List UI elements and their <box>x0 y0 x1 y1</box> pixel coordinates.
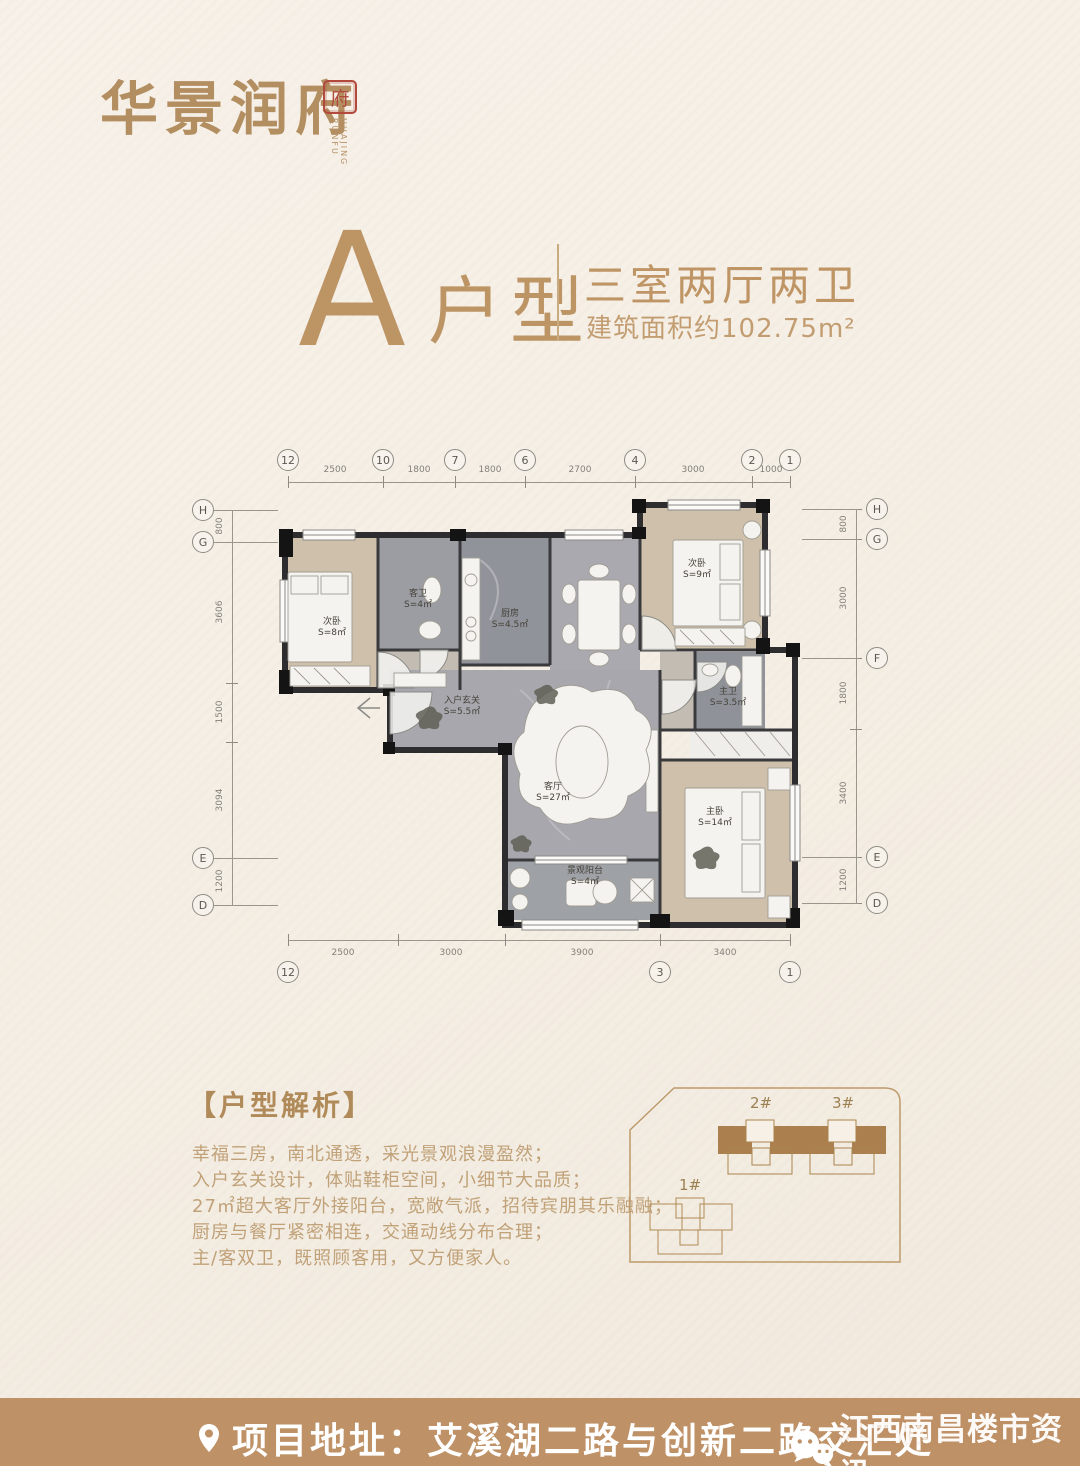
room-name: 厨房 <box>492 609 529 620</box>
watermark: 江西南昌楼市资讯 <box>788 1404 1080 1466</box>
analysis-line: 厨房与餐厅紧密相连，交通动线分布合理； <box>192 1218 553 1244</box>
grid-bubble-top: 12 <box>277 449 299 471</box>
building-3-label: 3# <box>832 1094 854 1112</box>
grid-bubble-right: F <box>866 647 888 669</box>
grid-bubble-left: G <box>192 531 214 553</box>
grid-bubble-right: G <box>866 528 888 550</box>
unit-area: 建筑面积约102.75m² <box>586 308 856 345</box>
axis-tick <box>505 934 506 946</box>
room-label-bedroom-left: 次卧 S=8㎡ <box>318 617 346 640</box>
room-name: 客厅 <box>536 782 570 793</box>
building-1 <box>650 1198 732 1254</box>
axis-leader <box>214 542 278 543</box>
dim-label: 800 <box>215 517 225 534</box>
room-area: S=14㎡ <box>698 818 732 829</box>
room-area: S=9㎡ <box>683 570 711 581</box>
axis-tick <box>226 683 238 684</box>
dim-label: 1000 <box>760 465 783 475</box>
axis-leader <box>802 658 858 659</box>
room-label-living: 客厅 S=27㎡ <box>536 782 570 805</box>
building-2-label: 2# <box>750 1094 772 1112</box>
dim-label: 1800 <box>408 465 431 475</box>
room-name: 主卧 <box>698 807 732 818</box>
axis-tick <box>398 934 399 946</box>
axis-tick <box>525 476 526 488</box>
room-area: S=4.5㎡ <box>492 620 529 631</box>
room-name: 主卫 <box>710 687 747 698</box>
axis-line-bottom <box>288 940 790 941</box>
title-divider <box>557 244 559 340</box>
location-pin-icon <box>198 1423 220 1453</box>
analysis-heading: 【户型解析】 <box>188 1084 374 1124</box>
room-name: 次卧 <box>683 559 711 570</box>
dim-label: 1200 <box>215 870 225 893</box>
room-name: 客卫 <box>404 589 432 600</box>
room-name: 入户玄关 <box>444 696 481 707</box>
wechat-icon <box>788 1428 835 1466</box>
axis-tick <box>635 476 636 488</box>
unit-spec: 三室两厅两卫 <box>584 252 860 313</box>
axis-leader <box>802 539 858 540</box>
room-area: S=5.5㎡ <box>444 707 481 718</box>
room-label-balcony: 景观阳台 S=4㎡ <box>567 866 603 889</box>
dim-label: 2500 <box>324 465 347 475</box>
axis-line-left <box>232 510 233 905</box>
room-area: S=8㎡ <box>318 628 346 639</box>
grid-bubble-top: 7 <box>444 449 466 471</box>
unit-letter: A <box>298 212 406 370</box>
axis-tick <box>660 934 661 946</box>
analysis-line: 幸福三房，南北通透，采光景观浪漫盈然； <box>192 1140 553 1166</box>
grid-bubble-right: D <box>866 892 888 914</box>
axis-tick <box>288 934 289 946</box>
room-label-bedroom-right: 次卧 S=9㎡ <box>683 559 711 582</box>
axis-tick <box>850 729 862 730</box>
analysis-line: 27㎡超大客厅外接阳台，宽敞气派，招待宾朋其乐融融； <box>192 1192 673 1218</box>
grid-bubble-top: 10 <box>372 449 394 471</box>
axis-leader <box>802 857 858 858</box>
axis-leader <box>214 510 278 511</box>
grid-bubble-left: D <box>192 894 214 916</box>
watermark-text: 江西南昌楼市资讯 <box>839 1404 1080 1466</box>
room-name: 景观阳台 <box>567 866 603 877</box>
room-area: S=3.5㎡ <box>710 698 747 709</box>
dim-label: 3000 <box>682 465 705 475</box>
dim-label: 3900 <box>571 948 594 958</box>
grid-bubble-bottom: 3 <box>649 961 671 983</box>
grid-bubble-bottom: 12 <box>277 961 299 983</box>
poster: 华景润府 府 HUAJING RUNFU A 户型 三室两厅两卫 建筑面积约10… <box>0 0 1080 1466</box>
dim-label: 1800 <box>479 465 502 475</box>
dim-label: 3000 <box>440 948 463 958</box>
building-3 <box>800 1120 886 1174</box>
dim-label: 2700 <box>569 465 592 475</box>
brand-seal-stamp: 府 <box>323 80 357 114</box>
room-area: S=4㎡ <box>404 600 432 611</box>
axis-tick <box>226 742 238 743</box>
axis-tick <box>288 476 289 488</box>
axis-leader <box>802 509 858 510</box>
axis-tick <box>383 476 384 488</box>
room-label-guest-bath: 客卫 S=4㎡ <box>404 589 432 612</box>
dim-label: 3094 <box>215 789 225 812</box>
room-name: 次卧 <box>318 617 346 628</box>
site-boundary <box>630 1088 900 1262</box>
axis-line-top <box>288 482 790 483</box>
grid-bubble-left: H <box>192 499 214 521</box>
dim-label: 2500 <box>332 948 355 958</box>
analysis-line: 入户玄关设计，体贴鞋柜空间，小细节大品质； <box>192 1166 591 1192</box>
dim-label: 3606 <box>215 601 225 624</box>
room-area: S=27㎡ <box>536 793 570 804</box>
room-label-master-bedroom: 主卧 S=14㎡ <box>698 807 732 830</box>
room-label-master-bath: 主卫 S=3.5㎡ <box>710 687 747 710</box>
axis-leader <box>802 903 858 904</box>
grid-bubble-top: 6 <box>514 449 536 471</box>
brand-seal-caption: HUAJING RUNFU <box>330 118 348 202</box>
axis-tick <box>790 934 791 946</box>
floorplan: 12 10 7 6 4 2 1 2500 1800 1800 2700 3000… <box>180 430 900 990</box>
dim-label: 1200 <box>839 869 849 892</box>
brand-logo: 华景润府 <box>100 62 360 146</box>
grid-bubble-right: H <box>866 498 888 520</box>
building-1-label: 1# <box>679 1176 701 1194</box>
building-2 <box>718 1120 804 1174</box>
axis-tick <box>455 476 456 488</box>
room-area: S=4㎡ <box>567 877 603 888</box>
dim-label: 1500 <box>215 701 225 724</box>
entry-arrow-icon <box>358 698 380 718</box>
grid-bubble-top: 1 <box>779 449 801 471</box>
analysis-line: 主/客双卫，既照顾客用，又方便家人。 <box>192 1244 522 1270</box>
grid-bubble-right: E <box>866 846 888 868</box>
dim-label: 1800 <box>839 682 849 705</box>
unit-type-label: 户型 <box>428 252 592 359</box>
room-label-foyer: 入户玄关 S=5.5㎡ <box>444 696 481 719</box>
grid-bubble-bottom: 1 <box>779 961 801 983</box>
siteplan: 2# 3# 1# <box>622 1082 908 1268</box>
room-label-kitchen: 厨房 S=4.5㎡ <box>492 609 529 632</box>
floorplan-drawing <box>180 430 900 990</box>
axis-tick <box>790 476 791 488</box>
dim-label: 3400 <box>839 782 849 805</box>
axis-tick <box>752 476 753 488</box>
grid-bubble-top: 4 <box>624 449 646 471</box>
dim-label: 3000 <box>839 587 849 610</box>
axis-line-right <box>856 509 857 903</box>
grid-bubble-top: 2 <box>741 449 763 471</box>
axis-leader <box>214 858 278 859</box>
dim-label: 3400 <box>714 948 737 958</box>
dim-label: 800 <box>839 515 849 532</box>
grid-bubble-left: E <box>192 847 214 869</box>
axis-leader <box>214 905 278 906</box>
